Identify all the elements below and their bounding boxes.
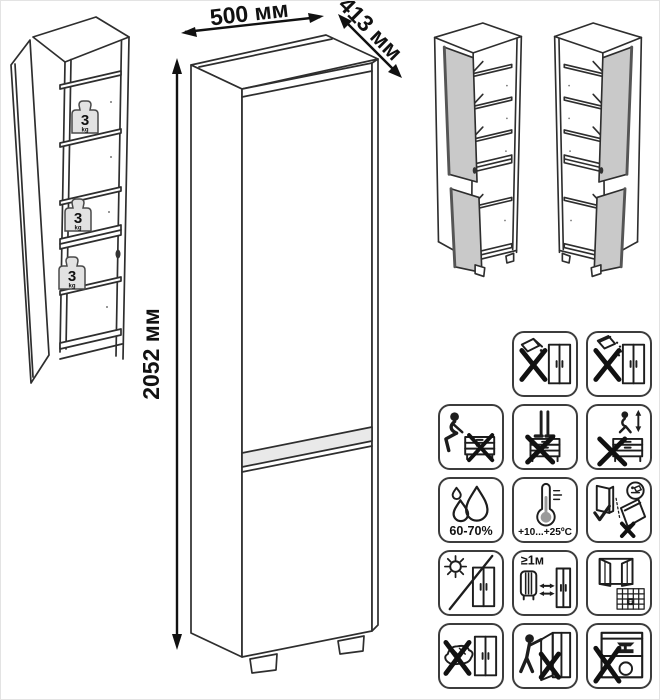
load-unit: kg (74, 226, 81, 232)
cabinet-foot (338, 636, 364, 654)
no-direct-sunlight-icon (442, 554, 500, 612)
icon-cell-no-wet-cleaning (512, 331, 578, 397)
icon-cell-humidity: 60-70% (438, 477, 504, 543)
door-handle (599, 167, 603, 174)
icon-cell-no-heavy-objects (586, 623, 652, 689)
load-value: 3 (68, 268, 76, 285)
no-sitting-icon (442, 408, 500, 466)
open-wardrobe-svg: 3 kg 3 kg 3 kg (3, 7, 138, 399)
no-wet-cleaning-icon (516, 335, 574, 393)
main-cabinet-drawing: 500 мм 413 мм 2052 мм (136, 1, 436, 700)
min-distance-label: ≥1м (521, 554, 544, 568)
icon-cell-no-standing (512, 404, 578, 470)
width-dimension: 500 мм (181, 0, 324, 37)
calendar-day-label: 21 (628, 600, 634, 606)
icon-cell-transport-upright (586, 477, 652, 543)
cabinet-foot (562, 253, 570, 263)
icon-cell-no-direct-sunlight (438, 550, 504, 616)
height-dimension: 2052 мм (138, 58, 182, 650)
humidity-icon: 60-70% (442, 481, 500, 539)
no-abrasive-powder-icon (590, 335, 648, 393)
variant-cabinet-right-hinged (545, 13, 651, 298)
open-wardrobe-drawing: 3 kg 3 kg 3 kg (3, 7, 138, 399)
main-cabinet-svg: 500 мм 413 мм 2052 мм (136, 1, 436, 700)
shelf-load-badge: 3 kg (72, 101, 98, 134)
shelf-load-badge: 3 kg (59, 257, 85, 290)
cabinet-foot (591, 265, 601, 277)
cabinet-left-side (191, 65, 242, 657)
width-label: 500 мм (208, 0, 289, 30)
cabinet-foot (250, 654, 277, 673)
load-unit: kg (81, 128, 88, 134)
shelf (60, 71, 121, 89)
icon-cell-no-hanging-on-doors (512, 623, 578, 689)
wardrobe-top-face (33, 17, 129, 62)
calendar (617, 589, 644, 609)
door-handle (116, 250, 121, 259)
icon-cell-no-abrasive-sponge (438, 623, 504, 689)
icon-cell-no-abrasive-powder (586, 331, 652, 397)
temperature-label: +10...+25ºC (518, 527, 572, 538)
cabinet-front-door (242, 63, 372, 657)
humidity-label: 60-70% (449, 524, 492, 538)
icon-cell-heater-distance: ≥1м (512, 550, 578, 616)
temperature-icon: +10...+25ºC (516, 481, 574, 539)
cabinet-foot (506, 253, 514, 263)
no-jumping-icon (590, 408, 648, 466)
icon-cell-ventilate-room: 21 (586, 550, 652, 616)
icon-cell-no-sitting (438, 404, 504, 470)
variant-cabinet-left-hinged (425, 13, 531, 298)
no-standing-icon (516, 408, 574, 466)
cabinet-right-edge (372, 59, 378, 631)
no-heavy-objects-icon (590, 627, 648, 685)
ventilate-room-icon: 21 (590, 554, 648, 612)
cabinet-foot (475, 265, 485, 277)
kettlebell-glyph (621, 662, 631, 664)
heater-distance-icon: ≥1м (516, 554, 574, 612)
load-value: 3 (74, 210, 82, 227)
transport-upright-icon (590, 481, 648, 539)
load-value: 3 (81, 112, 89, 129)
icon-cell-temperature: +10...+25ºC (512, 477, 578, 543)
no-hanging-on-doors-icon (516, 627, 574, 685)
cabinet-body (191, 35, 378, 673)
icon-cell-no-jumping (586, 404, 652, 470)
load-unit: kg (68, 284, 75, 290)
height-label: 2052 мм (138, 308, 164, 400)
wardrobe-technical-diagram: 3 kg 3 kg 3 kg 500 мм (0, 0, 660, 700)
care-icon-grid: 60-70% +10...+25ºC (438, 331, 652, 689)
door-handle (473, 167, 477, 174)
no-abrasive-sponge-icon (442, 627, 500, 685)
